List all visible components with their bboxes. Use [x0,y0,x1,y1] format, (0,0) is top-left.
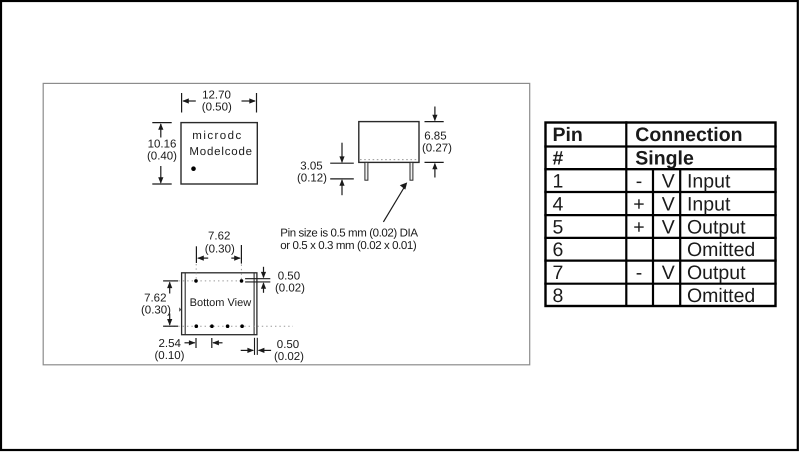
svg-text:(0.12): (0.12) [297,172,327,184]
svg-text:4: 4 [553,193,564,215]
svg-text:Output: Output [687,262,746,284]
svg-text:10.16: 10.16 [148,139,177,151]
svg-text:Connection: Connection [635,124,742,146]
svg-text:V: V [662,262,675,284]
svg-text:Omitted: Omitted [687,285,755,307]
svg-text:(0.50): (0.50) [202,102,232,114]
svg-text:7.62: 7.62 [144,292,166,304]
svg-text:Omitted: Omitted [687,239,755,261]
svg-text:-: - [636,170,643,192]
svg-text:(0.27): (0.27) [422,143,452,155]
svg-text:5: 5 [553,216,564,238]
svg-text:#: # [553,148,564,170]
svg-text:(0.10): (0.10) [154,350,184,362]
svg-text:7.62: 7.62 [208,231,230,243]
svg-text:Single: Single [635,148,694,170]
svg-text:2.54: 2.54 [159,338,182,350]
svg-text:Modelcode: Modelcode [189,146,252,158]
svg-text:+: + [633,193,644,215]
svg-text:7: 7 [553,262,564,284]
svg-text:(0.30): (0.30) [205,243,235,255]
svg-text:6.85: 6.85 [424,131,446,143]
svg-text:(0.30): (0.30) [141,304,171,316]
svg-text:Input: Input [687,193,731,215]
svg-text:Pin size is 0.5 mm (0.02) DIA: Pin size is 0.5 mm (0.02) DIA [280,227,418,239]
svg-text:Input: Input [687,170,731,192]
svg-text:or 0.5 x 0.3 mm (0.02 x 0.01): or 0.5 x 0.3 mm (0.02 x 0.01) [280,240,417,252]
svg-text:Output: Output [687,216,746,238]
svg-text:V: V [662,193,675,215]
svg-text:microdc: microdc [192,130,242,142]
svg-text:Bottom View: Bottom View [190,297,252,309]
svg-text:6: 6 [553,239,564,261]
svg-text:3.05: 3.05 [300,161,322,173]
svg-text:0.50: 0.50 [277,339,299,351]
svg-text:+: + [633,216,644,238]
svg-text:(0.02): (0.02) [275,282,305,294]
svg-text:V: V [662,170,675,192]
svg-text:V: V [662,216,675,238]
svg-text:12.70: 12.70 [202,90,231,102]
svg-text:(0.40): (0.40) [147,151,177,163]
svg-text:(0.02): (0.02) [274,351,304,363]
svg-text:Pin: Pin [553,124,583,146]
svg-text:0.50: 0.50 [278,270,300,282]
svg-text:8: 8 [553,285,564,307]
svg-text:1: 1 [553,170,564,192]
svg-text:-: - [636,262,643,284]
